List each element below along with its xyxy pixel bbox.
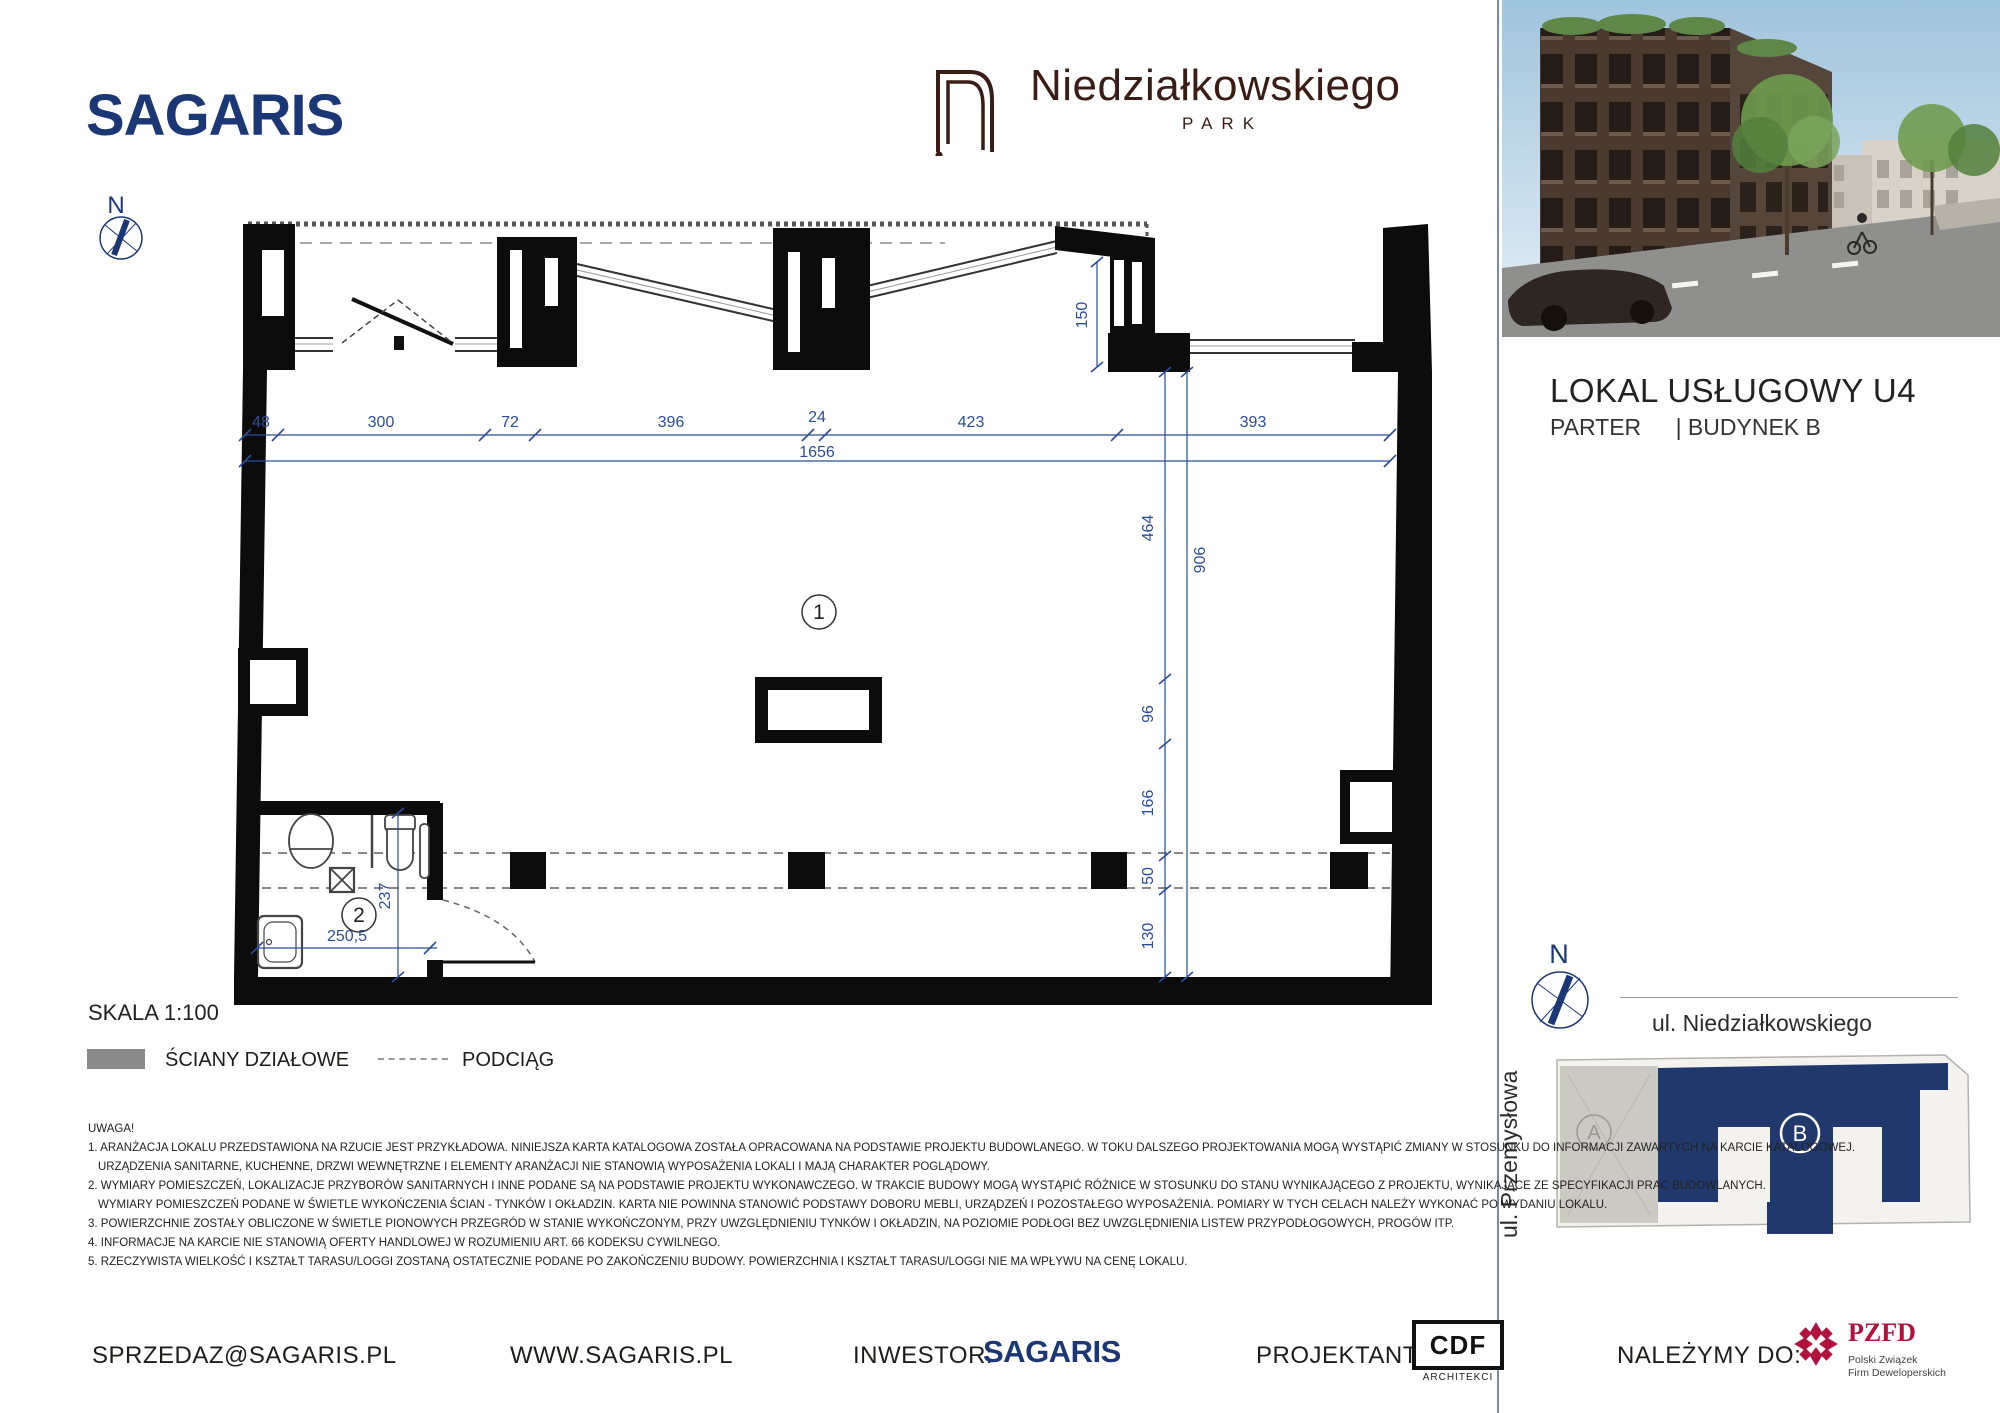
room-1-label: 1	[813, 601, 825, 624]
development-name: Niedziałkowskiego	[1030, 60, 1400, 112]
toilet-door	[443, 900, 535, 962]
dim-396: 396	[658, 414, 685, 431]
column	[1330, 852, 1368, 889]
dim-150: 150	[1074, 302, 1091, 329]
dim-50: 50	[1140, 867, 1157, 885]
legend-walls-label: ŚCIANY DZIAŁOWE	[165, 1049, 349, 1072]
note-line: 1. ARANŻACJA LOKALU PRZEDSTAWIONA NA RZU…	[88, 1139, 1428, 1158]
dim-72: 72	[501, 414, 519, 431]
sitemap-north-compass: N	[1532, 939, 1588, 1028]
north-compass: N	[100, 192, 142, 259]
notes-block: UWAGA! 1. ARANŻACJA LOKALU PRZEDSTAWIONA…	[88, 1120, 1428, 1272]
pzfd-logo-sub: Polski Związek Firm Deweloperskich	[1848, 1354, 1946, 1379]
pzfd-sub-line2: Firm Deweloperskich	[1848, 1367, 1946, 1380]
notes-title: UWAGA!	[88, 1120, 1428, 1139]
dim-96: 96	[1140, 705, 1157, 723]
unit-title: LOKAL USŁUGOWY U4	[1550, 372, 1916, 410]
central-shaft	[755, 677, 882, 743]
washbasin	[289, 814, 333, 868]
unit-subtitle: PARTER | BUDYNEK B	[1550, 414, 1831, 441]
street-line	[1620, 997, 1958, 998]
website-link[interactable]: WWW.SAGARIS.PL	[510, 1342, 733, 1370]
room-2-label: 2	[353, 904, 365, 927]
sitemap-north-label: N	[1549, 939, 1569, 969]
note-line: 2. WYMIARY POMIESZCZEŃ, LOKALIZACJE PRZY…	[88, 1177, 1428, 1196]
dim-237: 237	[377, 883, 394, 910]
note-line: WYMIARY POMIESZCZEŃ PODANE W ŚWIETLE WYK…	[88, 1196, 1428, 1215]
dim-393: 393	[1240, 414, 1267, 431]
dim-300: 300	[368, 414, 395, 431]
designer-label: PROJEKTANT:	[1256, 1342, 1422, 1370]
contact-email[interactable]: SPRZEDAZ@SAGARIS.PL	[92, 1342, 397, 1370]
unit-floor: PARTER	[1550, 414, 1641, 440]
unit-building: | BUDYNEK B	[1676, 414, 1821, 440]
legend-walls-swatch	[87, 1049, 145, 1069]
north-label: N	[107, 192, 124, 219]
pzfd-logo-name: PZFD	[1848, 1318, 1916, 1348]
compass-needle	[114, 220, 127, 255]
dim-423: 423	[958, 414, 985, 431]
dim-48: 48	[252, 414, 270, 431]
legend-beam-label: PODCIĄG	[462, 1049, 554, 1072]
development-logo: Niedziałkowskiego PARK	[928, 60, 1400, 156]
note-line: 4. INFORMACJE NA KARCIE NIE STANOWIĄ OFE…	[88, 1234, 1428, 1253]
entrance-door	[333, 299, 455, 356]
note-line: 5. RZECZYWISTA WIELKOŚĆ I KSZTAŁT TARASU…	[88, 1253, 1428, 1272]
facade-dashed-outline	[248, 224, 1147, 336]
room-labels: 1 2	[342, 595, 836, 932]
dim-166: 166	[1140, 790, 1157, 817]
column	[510, 852, 546, 889]
catalog-card-page: 1 2	[0, 0, 2000, 1413]
dim-906: 906	[1192, 547, 1209, 574]
pzfd-logo-icon	[1792, 1320, 1840, 1368]
note-line: 3. POWIERZCHNIE ZOSTAŁY OBLICZONE W ŚWIE…	[88, 1215, 1428, 1234]
cdf-logo: CDF	[1412, 1320, 1504, 1370]
pzfd-sub-line1: Polski Związek	[1848, 1354, 1946, 1367]
dim-130: 130	[1140, 923, 1157, 950]
building-a-label: A	[1587, 1122, 1601, 1144]
dim-24: 24	[808, 409, 826, 426]
shaft-box	[330, 868, 354, 892]
column	[1091, 852, 1127, 889]
dim-1656: 1656	[799, 444, 835, 461]
wc-bowl	[387, 829, 413, 870]
membership-label: NALEŻYMY DO:	[1617, 1342, 1801, 1370]
cdf-logo-sub: ARCHITEKCI	[1412, 1372, 1504, 1383]
scale-label: SKALA 1:100	[88, 1000, 219, 1026]
compass-needle	[1551, 976, 1570, 1024]
sink	[258, 916, 302, 968]
development-logo-icon	[928, 60, 1008, 156]
note-line: URZĄDZENIA SANITARNE, KUCHENNE, DRZWI WE…	[88, 1158, 1428, 1177]
investor-logo: SAGARIS	[983, 1334, 1121, 1370]
sagaris-logo: SAGARIS	[86, 82, 343, 149]
street-label-top: ul. Niedziałkowskiego	[1652, 1010, 1872, 1037]
photo-main-building	[1540, 28, 1730, 280]
investor-label: INWESTOR:	[853, 1342, 993, 1370]
legend-beam-swatch	[378, 1058, 448, 1060]
development-sub: PARK	[1182, 114, 1400, 134]
dim-464: 464	[1140, 515, 1157, 542]
radiator	[420, 824, 429, 878]
building-photo	[1502, 0, 2000, 337]
column	[788, 852, 825, 889]
dim-250-5: 250,5	[327, 928, 367, 945]
